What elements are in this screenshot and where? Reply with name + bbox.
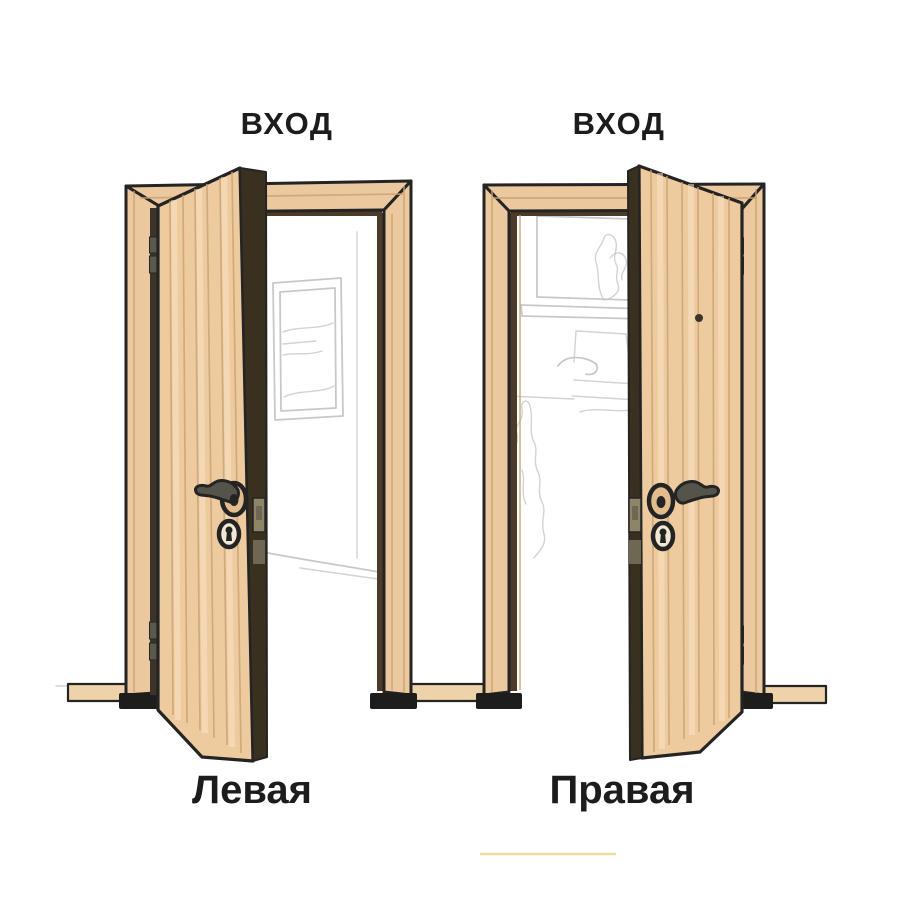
right-door-panel (628, 166, 742, 760)
handle-spindle (230, 494, 239, 506)
baseboard-right (764, 686, 826, 703)
frame-foot-left (476, 693, 522, 709)
baseboard-left (68, 684, 126, 701)
entrance-label-left: ВХОД (207, 106, 367, 142)
frame-jamb-hinge (741, 184, 764, 695)
frame-foot-right (370, 693, 417, 709)
left-door-panel (158, 168, 267, 761)
lock-faceplate-lower (253, 540, 265, 564)
caption-left-door: Левая (142, 768, 362, 813)
door-diagram: ВХОД ВХОД Левая Правая (0, 0, 900, 900)
keyhole-slot (660, 533, 666, 543)
keyhole-slot (226, 531, 232, 541)
peephole-icon (695, 314, 703, 322)
frame-jamb-lock (484, 185, 509, 695)
baseboard-middle (411, 684, 484, 701)
latch (256, 506, 262, 520)
caption-right-door: Правая (512, 768, 732, 813)
handle-spindle (657, 496, 666, 508)
keyhole-left (219, 521, 239, 547)
frame-jamb-lock (384, 181, 411, 695)
door-lock-edge (628, 166, 642, 760)
latch (632, 506, 638, 520)
right-door-assembly (476, 166, 773, 760)
entrance-label-right: ВХОД (539, 106, 699, 142)
left-door-assembly (119, 168, 417, 761)
lock-faceplate-lower (629, 540, 641, 564)
diagram-canvas (0, 0, 900, 900)
keyhole-right (653, 523, 673, 549)
